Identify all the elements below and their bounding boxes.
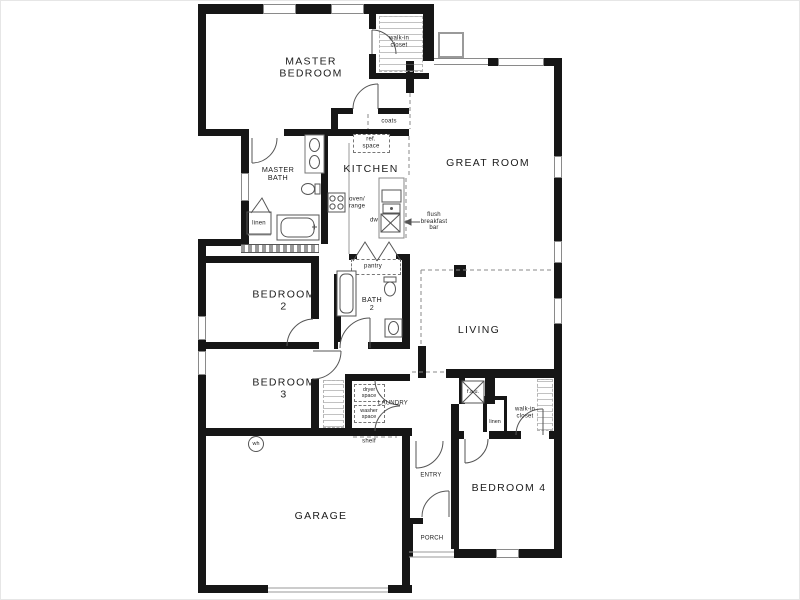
room-label-entry: ENTRY xyxy=(420,473,441,480)
label-washer-space: washer space xyxy=(360,408,377,420)
room-label-porch: PORCH xyxy=(421,536,444,543)
room-label-master-bedroom: MASTER BEDROOM xyxy=(279,56,342,80)
room-label-pantry: pantry xyxy=(364,264,382,271)
floor-plan: MASTER BEDROOM walk-in closet coats MAST… xyxy=(0,0,800,600)
label-dryer-space: dryer space xyxy=(362,387,376,399)
room-label-coats: coats xyxy=(381,119,396,126)
double-vanity-icon xyxy=(305,135,324,173)
room-label-bedroom-2: BEDROOM 2 xyxy=(252,289,315,313)
label-shelf: shelf xyxy=(362,439,376,446)
room-label-living: LIVING xyxy=(458,325,500,337)
room-label-kitchen: KITCHEN xyxy=(343,164,398,176)
label-fau: f.a.u. xyxy=(467,389,479,395)
door-swing-arcs xyxy=(251,30,543,517)
room-label-laundry: LAUNDRY xyxy=(378,401,408,408)
room-label-walk-in-closet-bed4: walk-in closet xyxy=(515,406,535,419)
toilet-icon xyxy=(302,184,315,195)
label-ref-space: ref. space xyxy=(362,136,379,149)
room-label-linen-master: linen xyxy=(252,221,266,228)
room-label-walk-in-closet-master: walk-in closet xyxy=(389,35,409,48)
label-oven-range: oven/ range xyxy=(349,196,365,209)
room-label-bedroom-3: BEDROOM 3 xyxy=(252,377,315,401)
label-water-heater: wh xyxy=(253,441,260,447)
thin-lines xyxy=(248,143,454,592)
room-label-master-bath: MASTER BATH xyxy=(262,166,294,182)
room-label-linen-bed4: linen xyxy=(489,419,500,425)
range-icon xyxy=(328,193,345,212)
label-flush-breakfast-bar: flush breakfast bar xyxy=(421,212,447,232)
room-label-garage: GARAGE xyxy=(295,511,348,523)
ceiling-break-dashes xyxy=(353,93,554,437)
label-dishwasher: dw xyxy=(370,218,378,225)
arrow-left-icon xyxy=(405,219,411,225)
plan-linework xyxy=(1,1,800,600)
room-label-great-room: GREAT ROOM xyxy=(446,158,530,170)
room-label-bath-2: BATH 2 xyxy=(362,296,382,312)
room-label-bedroom-4: BEDROOM 4 xyxy=(472,483,547,495)
toilet-icon xyxy=(384,277,396,282)
